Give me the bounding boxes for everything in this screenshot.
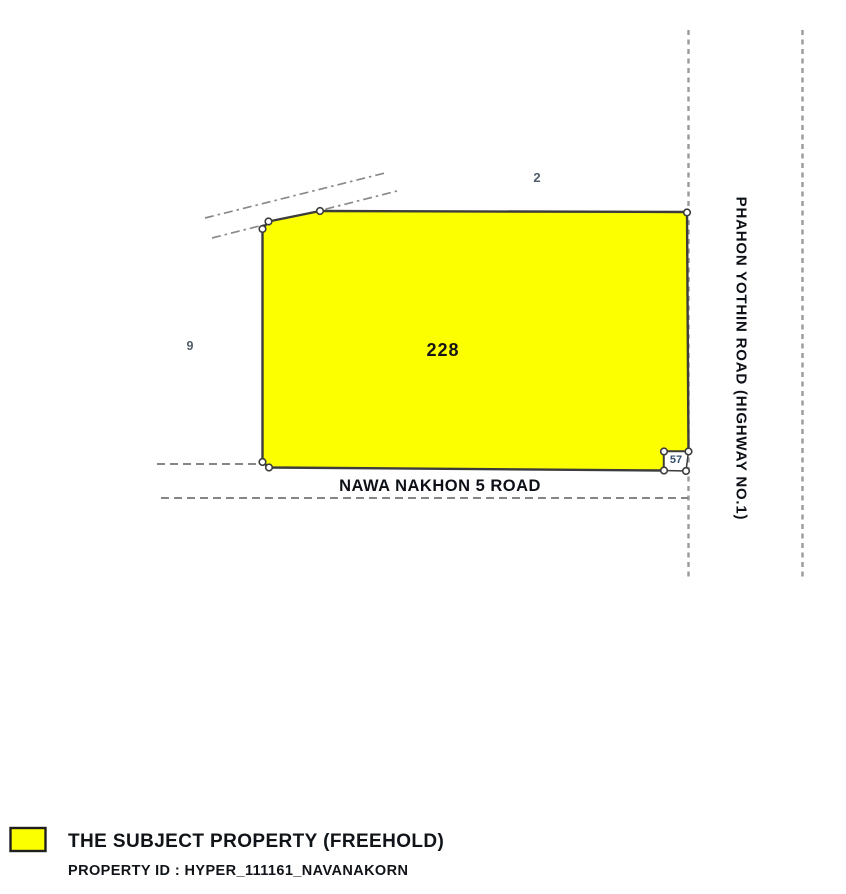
legend-title: THE SUBJECT PROPERTY (FREEHOLD): [68, 831, 444, 853]
vertex-marker: [317, 208, 324, 215]
vertex-marker: [661, 467, 668, 474]
label-south-road-name: NAWA NAKHON 5 ROAD: [339, 477, 541, 495]
vertex-marker: [259, 226, 266, 233]
vertex-marker: [684, 209, 691, 216]
label-east-road-name: PHAHON YOTHIN ROAD (HIGHWAY NO.1): [733, 197, 750, 521]
label-corner-parcel-57: 57: [670, 454, 682, 466]
vertex-marker: [266, 464, 273, 471]
vertex-marker: [661, 448, 668, 455]
site-plan-canvas: 228 2 9 57 NAWA NAKHON 5 ROAD PHAHON YOT…: [0, 0, 846, 894]
legend-swatch-icon: [8, 825, 48, 853]
vertex-marker: [683, 468, 690, 475]
label-west-parcel-9: 9: [187, 339, 194, 353]
label-north-parcel-2: 2: [533, 170, 540, 185]
label-subject-parcel-228: 228: [426, 340, 459, 360]
legend-property-id: PROPERTY ID : HYPER_111161_NAVANAKORN: [68, 863, 408, 879]
vertex-marker: [259, 459, 266, 466]
subject-property-polygon: [263, 211, 689, 471]
site-plan-page: 228 2 9 57 NAWA NAKHON 5 ROAD PHAHON YOT…: [0, 0, 846, 894]
vertex-marker: [265, 218, 272, 225]
vertex-marker: [685, 448, 692, 455]
legend-swatch-rect: [11, 828, 46, 851]
